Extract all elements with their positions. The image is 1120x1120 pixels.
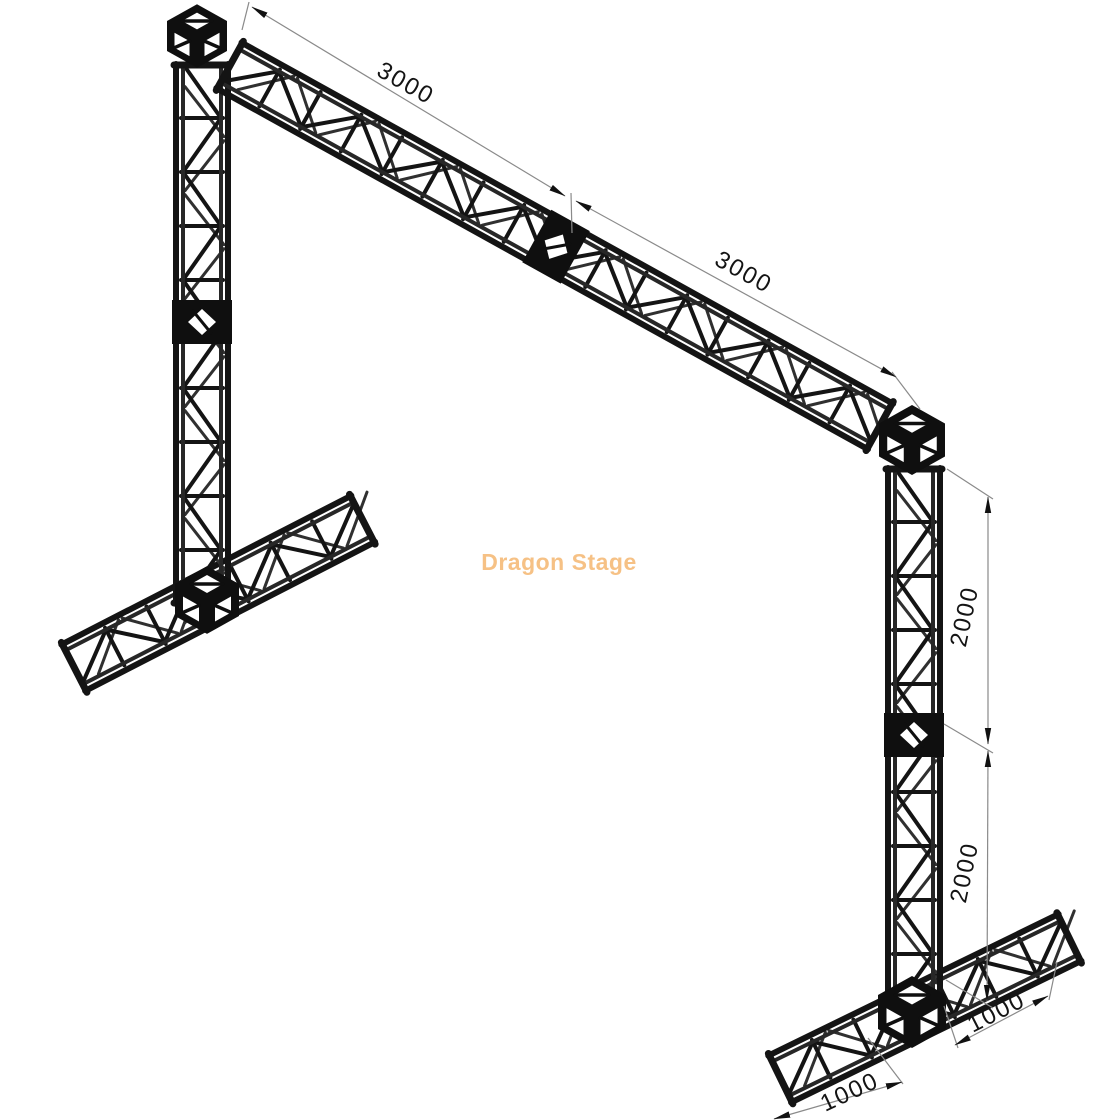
dim-label-column-upper: 2000 [945, 584, 984, 650]
left-column-truss [172, 64, 232, 623]
extension-line [242, 2, 249, 30]
dim-label-column-lower: 2000 [945, 840, 984, 906]
dim-label-beam-left: 3000 [372, 57, 439, 111]
extension-line [944, 724, 993, 753]
watermark: Dragon Stage [481, 549, 637, 575]
truss-structure-drawing: 3000 3000 2000 2000 1000 1000 Dragon Sta… [0, 0, 1120, 1120]
drawing-canvas: 3000 3000 2000 2000 1000 1000 Dragon Sta… [0, 0, 1120, 1120]
top-beam-truss [214, 39, 908, 460]
corner-connector-blocks [167, 4, 946, 1048]
dimension-line-beam-right [576, 201, 896, 377]
extension-line [947, 469, 993, 499]
dim-label-beam-right: 3000 [710, 246, 777, 299]
extension-line [892, 372, 920, 409]
right-column-truss [884, 468, 944, 1027]
